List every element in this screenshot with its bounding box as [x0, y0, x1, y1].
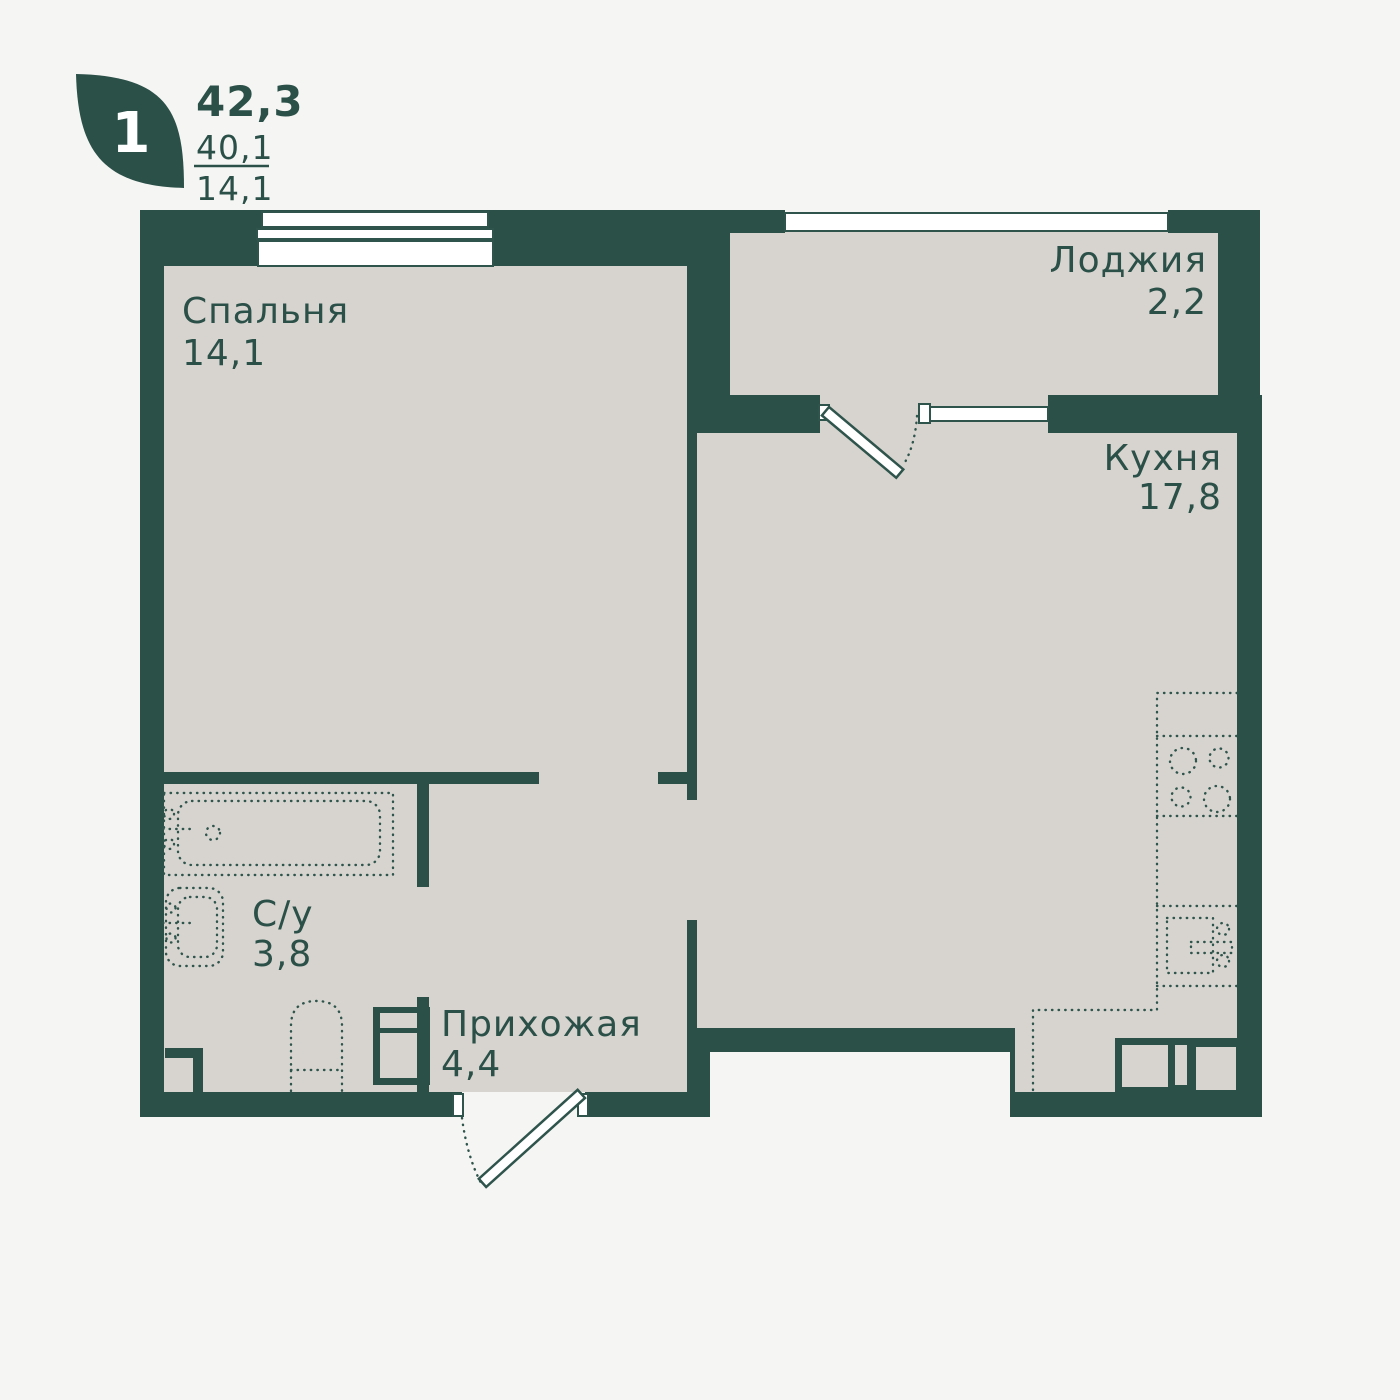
bathroom-label: С/у [252, 894, 314, 935]
rooms-count: 1 [112, 101, 151, 166]
hallway-kitchen-opening [685, 798, 699, 922]
loggia-label: Лоджия [1050, 240, 1207, 281]
kitchen-loggia-window [919, 404, 1048, 423]
total-area: 42,3 [196, 77, 304, 126]
kitchen-floor [697, 433, 1237, 1028]
bedroom-doorway [539, 770, 658, 786]
bathroom-area: 3,8 [252, 934, 312, 975]
bathroom-doorway [415, 887, 431, 997]
bedroom-label: Спальня [182, 291, 349, 332]
hallway-area: 4,4 [441, 1044, 501, 1085]
entrance-door-jamb-left [453, 1094, 463, 1116]
vent-shaft [1115, 1038, 1237, 1092]
secondary-area: 14,1 [196, 169, 273, 208]
loggia-area: 2,2 [1147, 282, 1207, 323]
kitchen-label: Кухня [1104, 438, 1222, 479]
wardrobe [373, 1007, 430, 1085]
bedroom-window [257, 212, 493, 266]
bathroom-corner-duct [165, 1048, 203, 1058]
kitchen-area: 17,8 [1138, 477, 1222, 518]
bedroom-area: 14,1 [182, 333, 266, 374]
living-area: 40,1 [196, 128, 273, 167]
hallway-label: Прихожая [441, 1004, 642, 1045]
loggia-glazing [785, 213, 1168, 231]
floor-plan: Спальня 14,1 Лоджия 2,2 Кухня 17,8 С/у 3… [0, 0, 1400, 1400]
